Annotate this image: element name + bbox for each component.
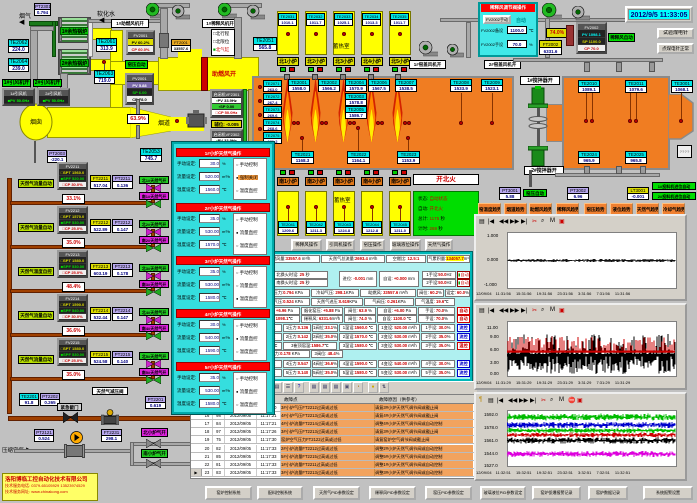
svg-text:烟囱: 烟囱 (30, 118, 42, 126)
